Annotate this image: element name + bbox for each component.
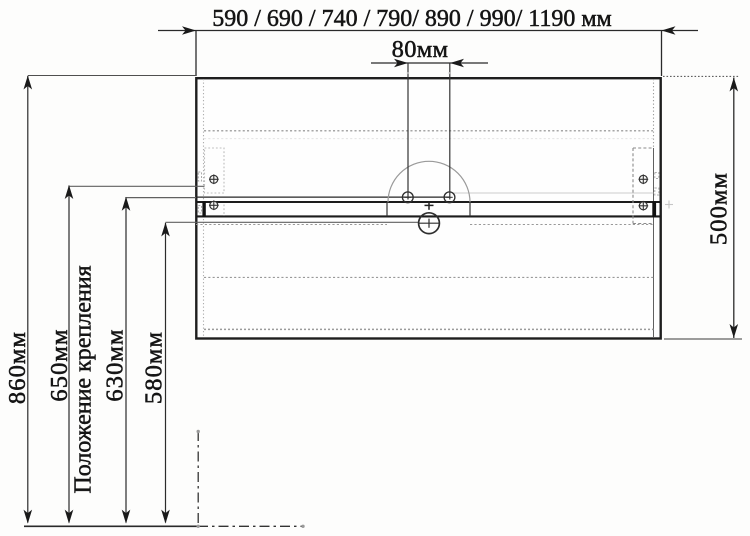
svg-text:500мм: 500мм — [706, 172, 733, 245]
svg-text:860мм: 860мм — [4, 331, 31, 404]
svg-text:650мм: 650мм — [46, 328, 73, 401]
svg-text:630мм: 630мм — [102, 328, 129, 401]
svg-text:80мм: 80мм — [392, 36, 449, 63]
svg-text:580мм: 580мм — [141, 331, 168, 404]
svg-text:Положение крепления: Положение крепления — [71, 265, 97, 493]
svg-text:590 / 690 / 740 / 790/ 890 / 9: 590 / 690 / 740 / 790/ 890 / 990/ 1190 м… — [212, 6, 612, 32]
